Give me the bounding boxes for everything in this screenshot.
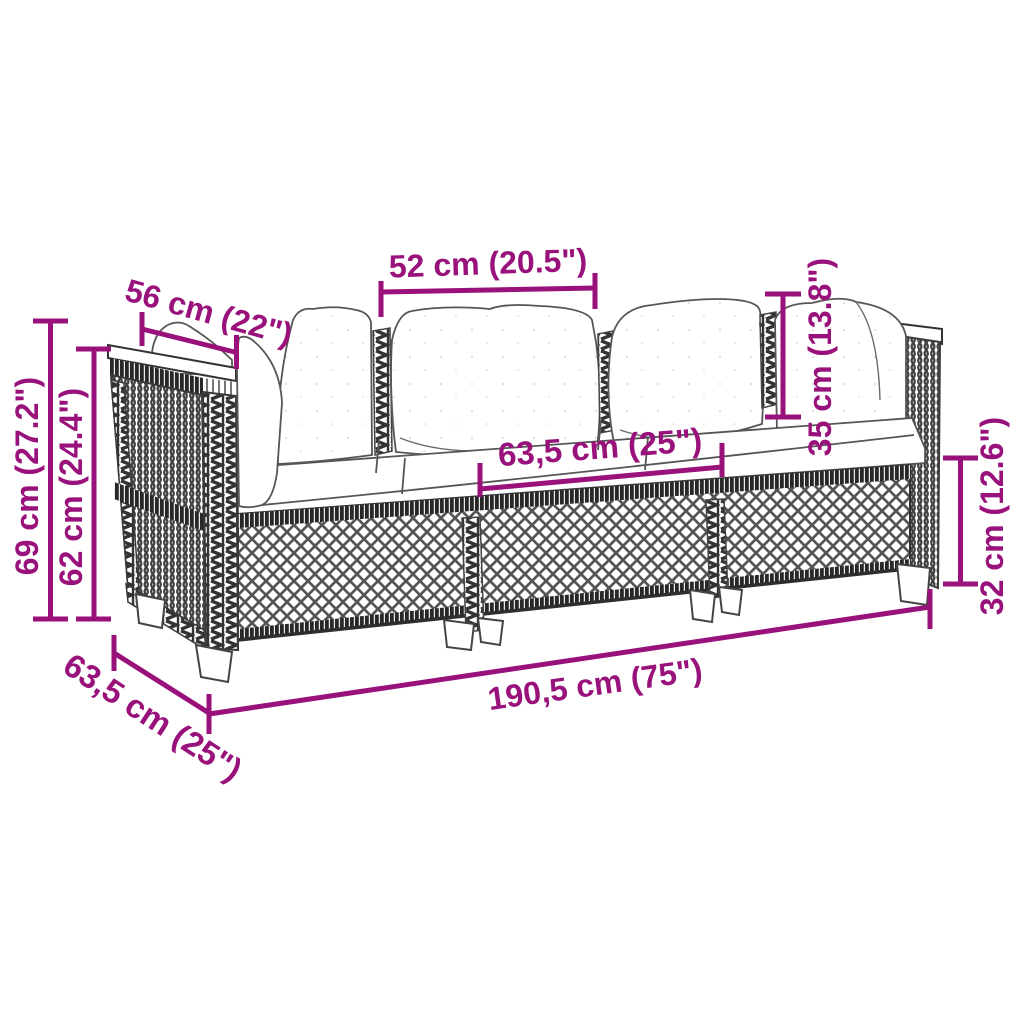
svg-text:69 cm (27.2"): 69 cm (27.2") <box>9 377 45 575</box>
svg-text:32 cm (12.6"): 32 cm (12.6") <box>974 417 1010 615</box>
svg-text:35 cm (13.8"): 35 cm (13.8") <box>802 258 838 456</box>
svg-text:62 cm (24.4"): 62 cm (24.4") <box>53 388 89 586</box>
svg-text:52 cm (20.5"): 52 cm (20.5") <box>388 242 588 285</box>
